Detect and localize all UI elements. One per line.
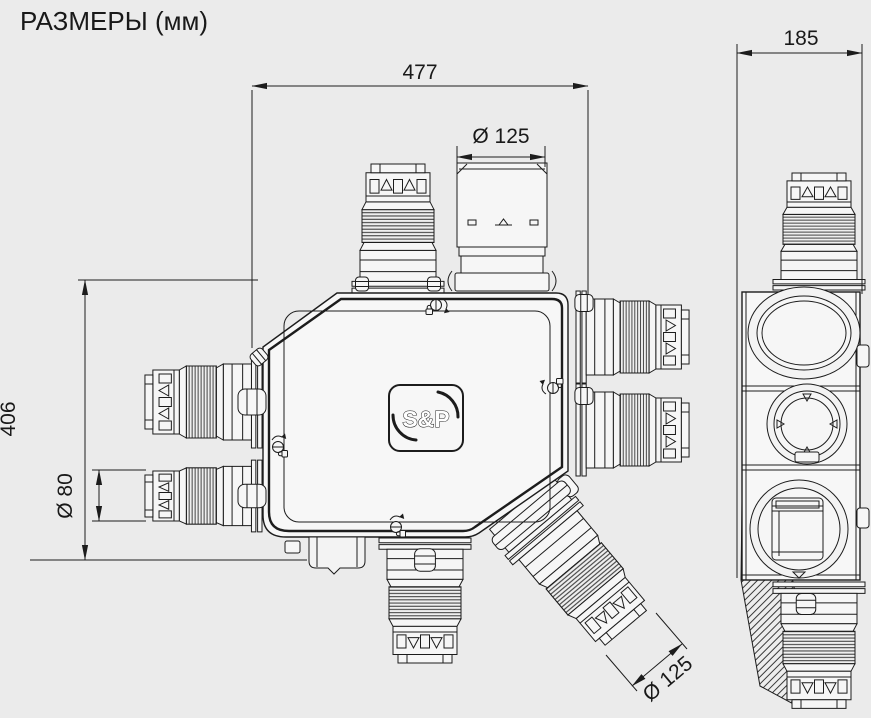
flange-clamp bbox=[575, 388, 593, 405]
brand-logo-text: S&P bbox=[402, 406, 449, 432]
flange-clamp bbox=[238, 484, 266, 507]
side-port-lower bbox=[750, 480, 848, 578]
dim-overall-height-label: 406 bbox=[0, 401, 20, 436]
flange-clamp bbox=[356, 277, 369, 291]
flange-clamp bbox=[428, 277, 441, 291]
flange-clamp bbox=[575, 295, 593, 312]
dimension-top-port: Ø 125 bbox=[457, 125, 545, 167]
flange-clamp bbox=[415, 549, 436, 571]
side-top-spigot bbox=[773, 173, 865, 290]
side-bottom-spigot bbox=[773, 582, 865, 708]
dim-overall-width-label: 477 bbox=[402, 61, 437, 84]
brand-logo: S&P bbox=[389, 385, 463, 451]
drawing-page: РАЗМЕРЫ (мм) bbox=[0, 0, 871, 718]
side-latch bbox=[857, 508, 869, 528]
side-latch bbox=[857, 345, 869, 367]
dim-left-port-label: Ø 80 bbox=[54, 473, 77, 519]
dimension-left-port: Ø 80 bbox=[54, 470, 146, 521]
dim-depth-label: 185 bbox=[783, 27, 818, 50]
dimension-drawing: РАЗМЕРЫ (мм) bbox=[0, 0, 871, 718]
top-round-port bbox=[448, 163, 556, 291]
front-view: S&P bbox=[145, 163, 689, 663]
dim-top-port-label: Ø 125 bbox=[472, 125, 529, 148]
side-port-middle bbox=[767, 384, 847, 464]
side-view bbox=[741, 173, 869, 708]
side-port-large bbox=[748, 287, 860, 379]
dim-diagonal-port-label: Ø 125 bbox=[639, 652, 698, 706]
foot-tab bbox=[285, 541, 300, 553]
page-title: РАЗМЕРЫ (мм) bbox=[20, 6, 208, 36]
flange-clamp bbox=[796, 594, 816, 615]
top-ribbed-spigot bbox=[352, 164, 444, 293]
flange-clamp bbox=[238, 389, 266, 415]
